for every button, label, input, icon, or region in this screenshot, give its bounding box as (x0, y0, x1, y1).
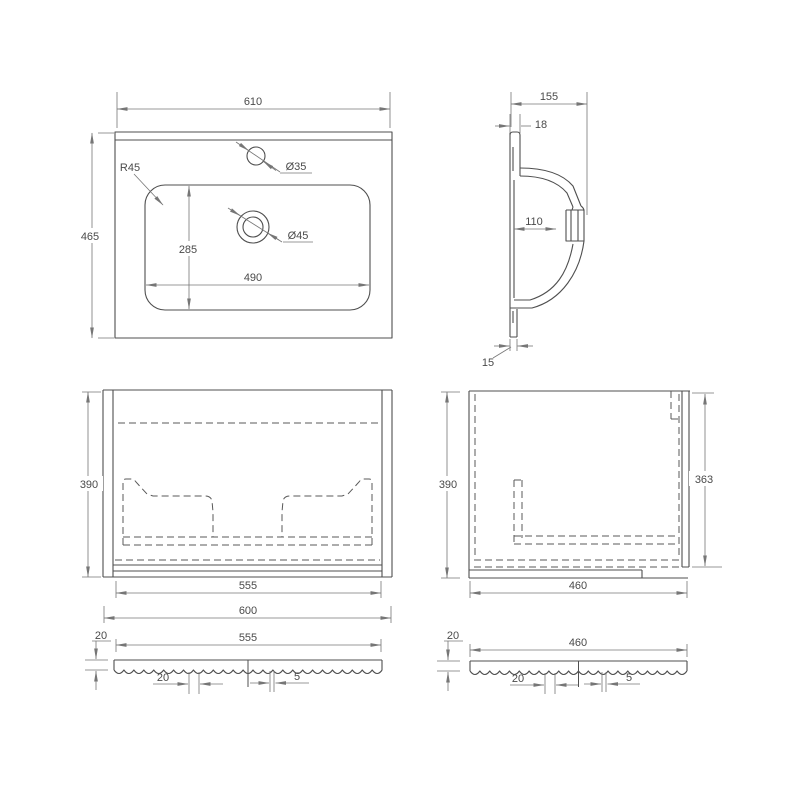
washbasin-side-section: 155 18 110 15 (482, 91, 587, 369)
washbasin-top-view: 610 465 R45 Ø35 Ø45 285 490 (76, 92, 392, 338)
side-panel-thickness-label: 20 (447, 630, 459, 642)
side-panel-width-label: 460 (569, 637, 587, 649)
basin-width-label: 490 (244, 272, 262, 284)
side-panel-groove-spacing-label: 20 (512, 673, 524, 685)
drawing-canvas: 610 465 R45 Ø35 Ø45 285 490 (0, 0, 800, 800)
cabinet-height-label: 390 (80, 479, 98, 491)
faucet-hole-label: Ø35 (286, 161, 307, 173)
front-panel-section: 20 555 20 5 (85, 630, 382, 694)
front-panel-groove-spacing-label: 20 (157, 672, 169, 684)
side-panel-groove-width-label: 5 (626, 672, 632, 684)
inner-depth-label: 110 (525, 216, 543, 228)
side-panel-section: 20 460 20 5 (437, 630, 687, 694)
drain-hole-label: Ø45 (288, 230, 309, 242)
dim-side-depth-label: 155 (540, 91, 558, 103)
cabinet-outer-width-label: 600 (239, 605, 257, 617)
front-panel-groove-width-label: 5 (294, 671, 300, 683)
cabinet-depth-label: 460 (569, 580, 587, 592)
basin-depth-label: 285 (179, 244, 197, 256)
bottom-lip-label: 15 (482, 357, 494, 369)
technical-drawing: 610 465 R45 Ø35 Ø45 285 490 (0, 0, 800, 800)
front-panel-width-label: 555 (239, 632, 257, 644)
dim-top-width-label: 610 (244, 96, 262, 108)
cabinet-inner-width-label: 555 (239, 580, 257, 592)
cabinet-side-height-label: 390 (439, 479, 457, 491)
front-panel-thickness-label: 20 (95, 630, 107, 642)
front-lip-label: 18 (535, 119, 547, 131)
cabinet-front-view: 390 555 600 (74, 390, 392, 623)
cabinet-inner-height-label: 363 (695, 474, 713, 486)
cabinet-side-view: 390 363 460 (433, 391, 722, 598)
corner-radius-label: R45 (120, 162, 140, 174)
dim-top-depth-label: 465 (81, 231, 99, 243)
